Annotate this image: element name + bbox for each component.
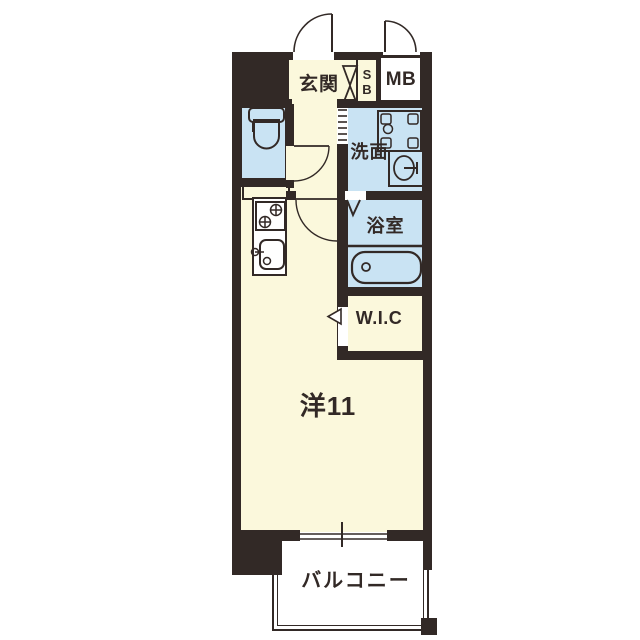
- entrance-door-sill: [293, 50, 334, 60]
- wall-right: [423, 52, 432, 570]
- main-door-opening: [296, 191, 337, 200]
- pillar-block: [232, 531, 282, 575]
- accordion-door-panel: [337, 108, 348, 144]
- wall-wic-bottom: [337, 351, 432, 360]
- western-room-label: 洋11: [288, 389, 368, 419]
- toilet-door-opening: [286, 146, 294, 180]
- entrance-door-swing-icon: [294, 14, 332, 52]
- floor-plan: 玄関 SB MB 洗面 浴室 W.I.C 洋11 バルコニー: [0, 0, 640, 640]
- bathroom-door-sill: [345, 191, 366, 200]
- balcony-corner-post: [421, 618, 437, 635]
- wall-left: [232, 52, 241, 541]
- meter-box-door-swing-icon: [385, 21, 416, 52]
- balcony-label: バルコニー: [300, 566, 412, 590]
- genkan-label: 玄関: [295, 71, 343, 93]
- kitchen-counter: [252, 197, 287, 276]
- wall-genkan-bottom-left: [232, 99, 292, 108]
- wic-door-panel: [338, 307, 348, 346]
- bathroom-label: 浴室: [363, 214, 408, 236]
- meter-box-label: MB: [381, 69, 421, 91]
- toilet-room: [240, 104, 287, 180]
- shoe-box-label: SB: [358, 63, 376, 101]
- washroom-label: 洗面: [347, 141, 392, 161]
- wall-bottom-right: [387, 530, 432, 541]
- wall-toilet-bottom: [232, 178, 294, 187]
- wall-bath-wic: [337, 287, 432, 296]
- wic-label: W.I.C: [350, 307, 408, 329]
- window-sill: [300, 532, 387, 541]
